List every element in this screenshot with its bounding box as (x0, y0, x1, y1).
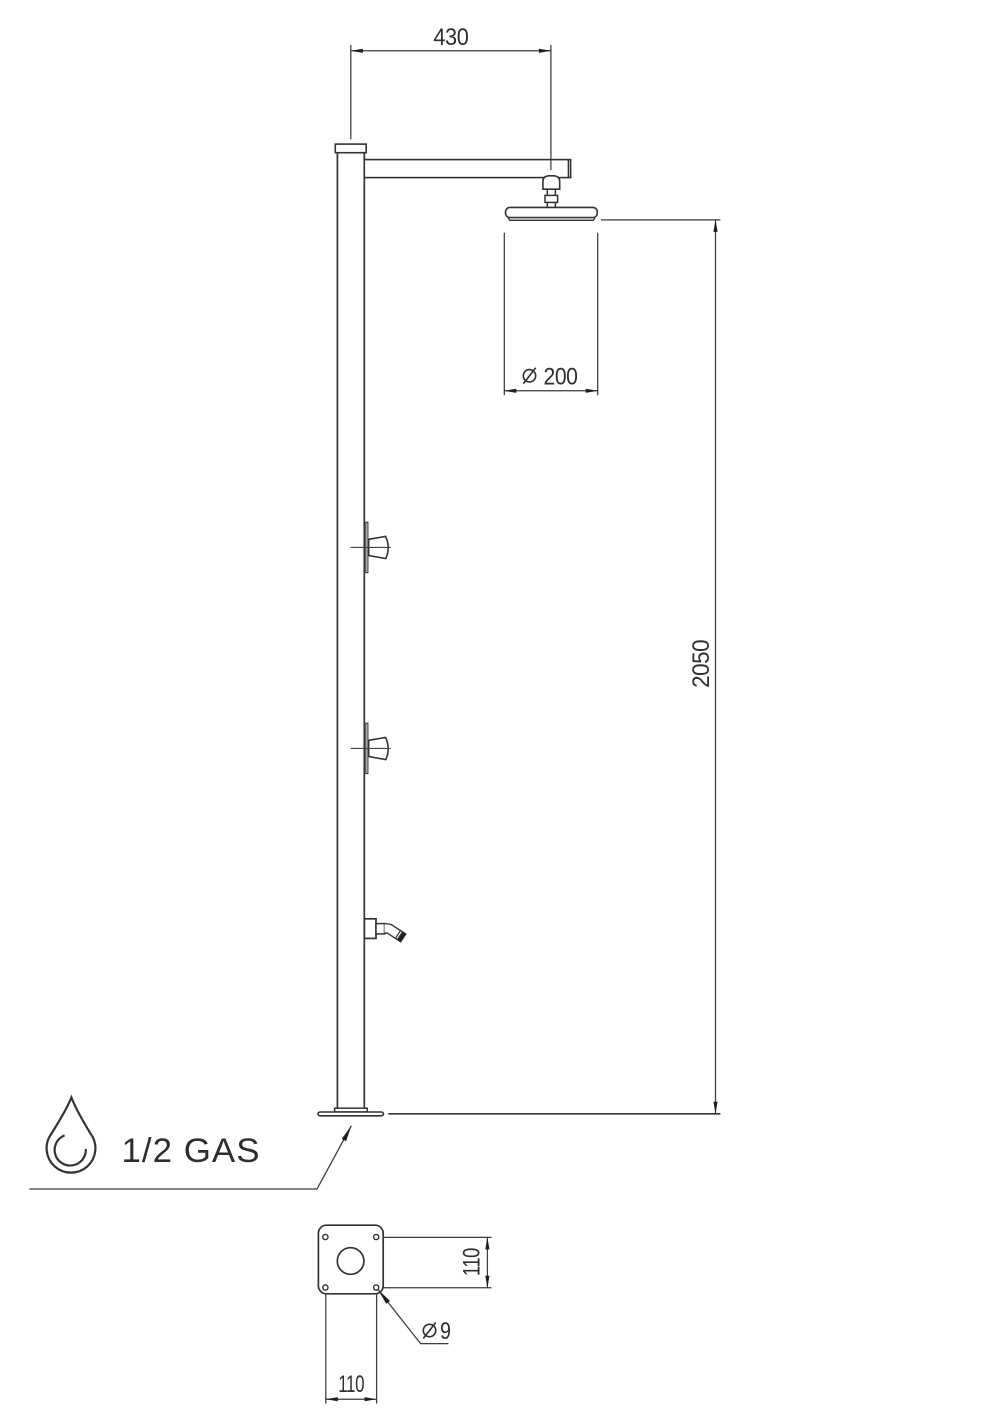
svg-text:200: 200 (544, 363, 578, 390)
svg-text:2050: 2050 (688, 640, 715, 688)
svg-text:110: 110 (338, 1371, 364, 1398)
svg-text:9: 9 (440, 1318, 451, 1345)
svg-text:110: 110 (459, 1248, 486, 1276)
svg-text:430: 430 (433, 24, 468, 51)
svg-text:1/2 GAS: 1/2 GAS (122, 1132, 261, 1170)
